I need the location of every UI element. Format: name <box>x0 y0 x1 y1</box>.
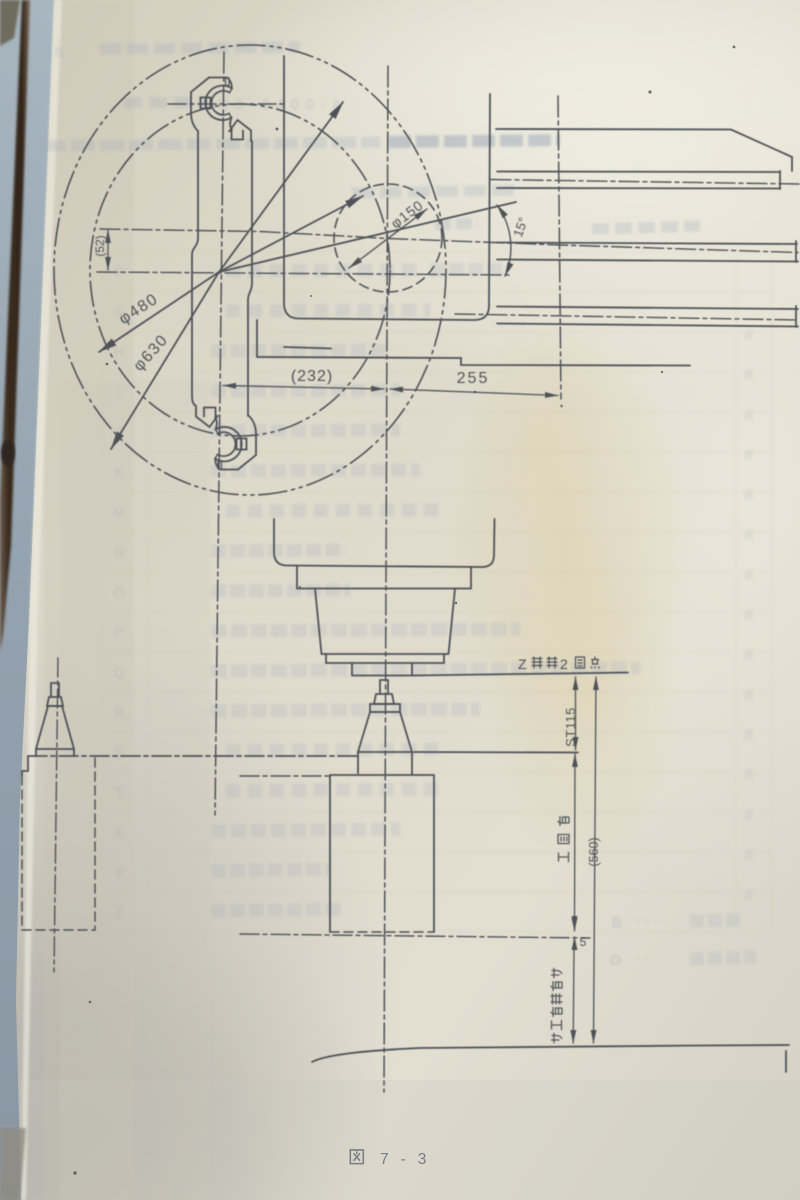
svg-text:B: B <box>745 487 754 502</box>
svg-text:B: B <box>745 567 754 582</box>
svg-text:Z: Z <box>115 904 124 920</box>
svg-text:Q: Q <box>114 664 125 680</box>
svg-text:S: S <box>114 744 123 760</box>
svg-text:M: M <box>113 504 125 520</box>
svg-text:B: B <box>745 607 754 622</box>
svg-text:K: K <box>114 464 124 480</box>
svg-text:5: 5 <box>55 44 63 60</box>
svg-text:B: B <box>745 687 754 702</box>
svg-text:I: I <box>117 384 121 400</box>
svg-text:R: R <box>114 704 124 720</box>
svg-text:B: B <box>745 887 754 902</box>
svg-text:(560): (560) <box>587 837 601 866</box>
svg-text:B: B <box>745 807 754 822</box>
svg-text:···: ··· <box>636 912 662 928</box>
svg-text:(232): (232) <box>291 368 333 385</box>
svg-text:B: B <box>745 767 754 782</box>
svg-text:B: B <box>745 327 754 342</box>
svg-text:2: 2 <box>560 656 568 672</box>
svg-text:255: 255 <box>457 370 490 387</box>
svg-text:Z: Z <box>518 656 527 672</box>
svg-text:B: B <box>745 647 754 662</box>
svg-text:P: P <box>114 624 123 640</box>
svg-text:ST115: ST115 <box>563 707 578 747</box>
svg-text:B: B <box>612 914 621 930</box>
svg-text:B: B <box>745 727 754 742</box>
svg-text:T: T <box>115 784 124 800</box>
svg-text:H: H <box>114 344 124 360</box>
svg-text:B: B <box>745 407 754 422</box>
svg-text:···: ··· <box>636 950 662 966</box>
svg-text:(52): (52) <box>93 235 107 256</box>
svg-text:B: B <box>745 447 754 462</box>
svg-text:O: O <box>610 952 621 968</box>
svg-text:7-3: 7-3 <box>380 1151 438 1168</box>
svg-text:X: X <box>114 824 124 840</box>
svg-text:B: B <box>745 367 754 382</box>
svg-text:B: B <box>745 527 754 542</box>
svg-text:N: N <box>114 544 124 560</box>
svg-text:B: B <box>745 847 754 862</box>
svg-text:O: O <box>114 584 125 600</box>
svg-text:Y: Y <box>114 864 124 880</box>
svg-text:5: 5 <box>580 935 587 949</box>
